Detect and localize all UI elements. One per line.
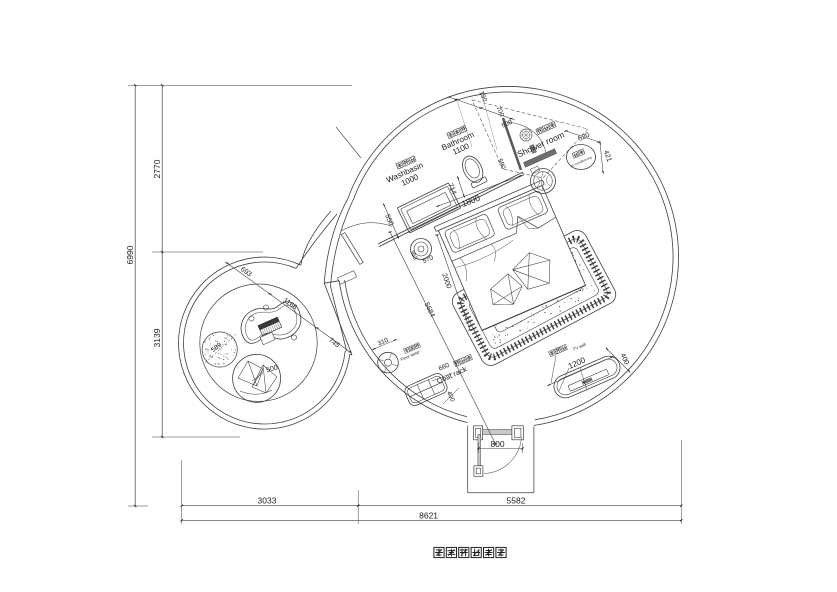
svg-text:5582: 5582 (507, 495, 526, 505)
svg-text:800: 800 (490, 439, 504, 449)
svg-text:2770: 2770 (152, 159, 162, 178)
svg-text:8621: 8621 (419, 510, 438, 520)
svg-text:6990: 6990 (125, 245, 135, 264)
svg-text:3139: 3139 (152, 328, 162, 347)
svg-text:3033: 3033 (258, 495, 277, 505)
